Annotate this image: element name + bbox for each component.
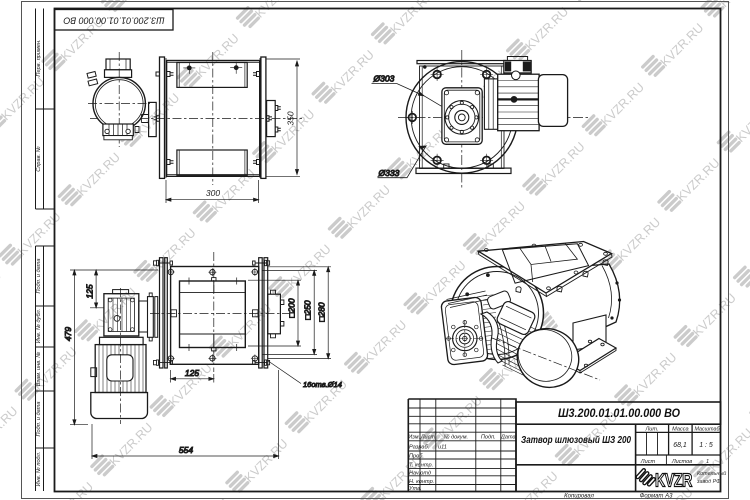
svg-text:KVZR.RU: KVZR.RU — [690, 291, 739, 340]
svg-text:KVZR.RU: KVZR.RU — [328, 48, 377, 97]
svg-text:Перв. примен.: Перв. примен. — [36, 39, 42, 76]
svg-text:KVZR.RU: KVZR.RU — [361, 318, 410, 367]
svg-text:KVZR.RU: KVZR.RU — [193, 31, 242, 80]
svg-text:KVZR.RU: KVZR.RU — [74, 150, 123, 199]
svg-text:300: 300 — [206, 188, 220, 198]
svg-text:KVZR.RU: KVZR.RU — [631, 350, 680, 399]
svg-text:554: 554 — [179, 445, 193, 455]
svg-text:Лист: Лист — [640, 459, 656, 465]
svg-text:Лит.: Лит. — [644, 427, 658, 433]
svg-text:u11: u11 — [438, 445, 447, 451]
svg-text:Инв. № подл.: Инв. № подл. — [36, 452, 42, 487]
svg-text:KVZR.RU: KVZR.RU — [344, 183, 393, 232]
svg-text:KVZR.RU: KVZR.RU — [674, 156, 723, 205]
svg-text:Ø333: Ø333 — [378, 168, 400, 178]
svg-text:Инв. № дубл.: Инв. № дубл. — [36, 309, 42, 343]
svg-text:Взам. инв. №: Взам. инв. № — [36, 352, 42, 387]
svg-text:Листов: Листов — [671, 459, 692, 465]
svg-text:□200: □200 — [287, 298, 297, 318]
svg-text:KVZR.RU: KVZR.RU — [539, 139, 588, 188]
svg-text:KVZR.RU: KVZR.RU — [0, 74, 47, 123]
svg-text:Дата: Дата — [500, 435, 516, 441]
svg-text:KVZR.RU: KVZR.RU — [107, 420, 156, 469]
svg-text:KVZR.RU: KVZR.RU — [117, 0, 166, 4]
svg-text:Затвор шлюзовый ШЗ 200: Затвор шлюзовый ШЗ 200 — [521, 434, 631, 446]
svg-text:Нач.отд: Нач.отд — [409, 470, 431, 476]
svg-text:68,1: 68,1 — [673, 442, 687, 449]
svg-text:KVZR.RU: KVZR.RU — [598, 80, 647, 129]
svg-text:1: 1 — [706, 459, 709, 465]
svg-text:KVZR.RU: KVZR.RU — [479, 199, 528, 248]
svg-text:Подп. и дата: Подп. и дата — [36, 401, 42, 436]
svg-text:KVZR.RU: KVZR.RU — [615, 215, 664, 264]
svg-text:KVZR.RU: KVZR.RU — [523, 4, 572, 53]
svg-text:Подп.: Подп. — [481, 435, 496, 441]
svg-text:Подп. и дата: Подп. и дата — [36, 258, 42, 293]
svg-text:Масса: Масса — [672, 427, 689, 433]
svg-text:Н. контр.: Н. контр. — [409, 479, 434, 485]
svg-text:KVZR.RU: KVZR.RU — [226, 301, 275, 350]
svg-text:KVZR: KVZR — [655, 470, 692, 491]
svg-text:KVZR.RU: KVZR.RU — [512, 469, 561, 500]
svg-text:Разраб.: Разраб. — [409, 445, 429, 451]
svg-text:Проб.: Проб. — [409, 453, 424, 459]
svg-text:KVZR.RU: KVZR.RU — [658, 21, 707, 70]
svg-text:Масштаб: Масштаб — [695, 427, 721, 433]
svg-text:125: 125 — [85, 284, 95, 298]
svg-text:KVZR.RU: KVZR.RU — [388, 0, 437, 37]
svg-text:1 : 5: 1 : 5 — [699, 442, 713, 449]
svg-text:Ø303: Ø303 — [373, 74, 395, 84]
svg-text:KVZR.RU: KVZR.RU — [91, 285, 140, 334]
svg-text:KVZR.RU: KVZR.RU — [253, 0, 302, 21]
svg-text:KVZR.RU: KVZR.RU — [285, 242, 334, 291]
svg-text:Лист: Лист — [420, 435, 436, 441]
svg-text:KVZR.RU: KVZR.RU — [0, 269, 4, 318]
svg-text:Ш3.200.01.01.00.000 ВО: Ш3.200.01.01.00.000 ВО — [558, 406, 681, 420]
svg-text:16отв.Ø14: 16отв.Ø14 — [303, 380, 342, 389]
svg-text:Копировал: Копировал — [564, 494, 594, 500]
svg-text:□280: □280 — [317, 302, 327, 322]
svg-text:Изм.: Изм. — [408, 435, 420, 441]
svg-text:Ш3.200.01.01.00.000 ВО: Ш3.200.01.01.00.000 ВО — [63, 16, 164, 26]
svg-text:Справ. №: Справ. № — [36, 146, 42, 171]
svg-text:Котельный: Котельный — [697, 470, 726, 477]
svg-text:завод РФ: завод РФ — [696, 479, 721, 485]
svg-text:125: 125 — [185, 368, 199, 378]
svg-text:KVZR.RU: KVZR.RU — [0, 404, 20, 453]
svg-text:Формат А3: Формат А3 — [640, 494, 673, 500]
svg-text:KVZR.RU: KVZR.RU — [183, 496, 232, 500]
svg-text:Т. контр.: Т. контр. — [409, 463, 433, 469]
svg-text:№ докум.: № докум. — [443, 435, 468, 441]
svg-text:350: 350 — [286, 111, 296, 125]
svg-text:479: 479 — [63, 327, 73, 341]
svg-text:KVZR.RU: KVZR.RU — [15, 209, 64, 258]
svg-text:□250: □250 — [303, 300, 313, 320]
svg-text:Утв.: Утв. — [408, 486, 422, 492]
svg-text:KVZR.RU: KVZR.RU — [733, 96, 750, 145]
svg-text:KVZR.RU: KVZR.RU — [242, 436, 291, 485]
